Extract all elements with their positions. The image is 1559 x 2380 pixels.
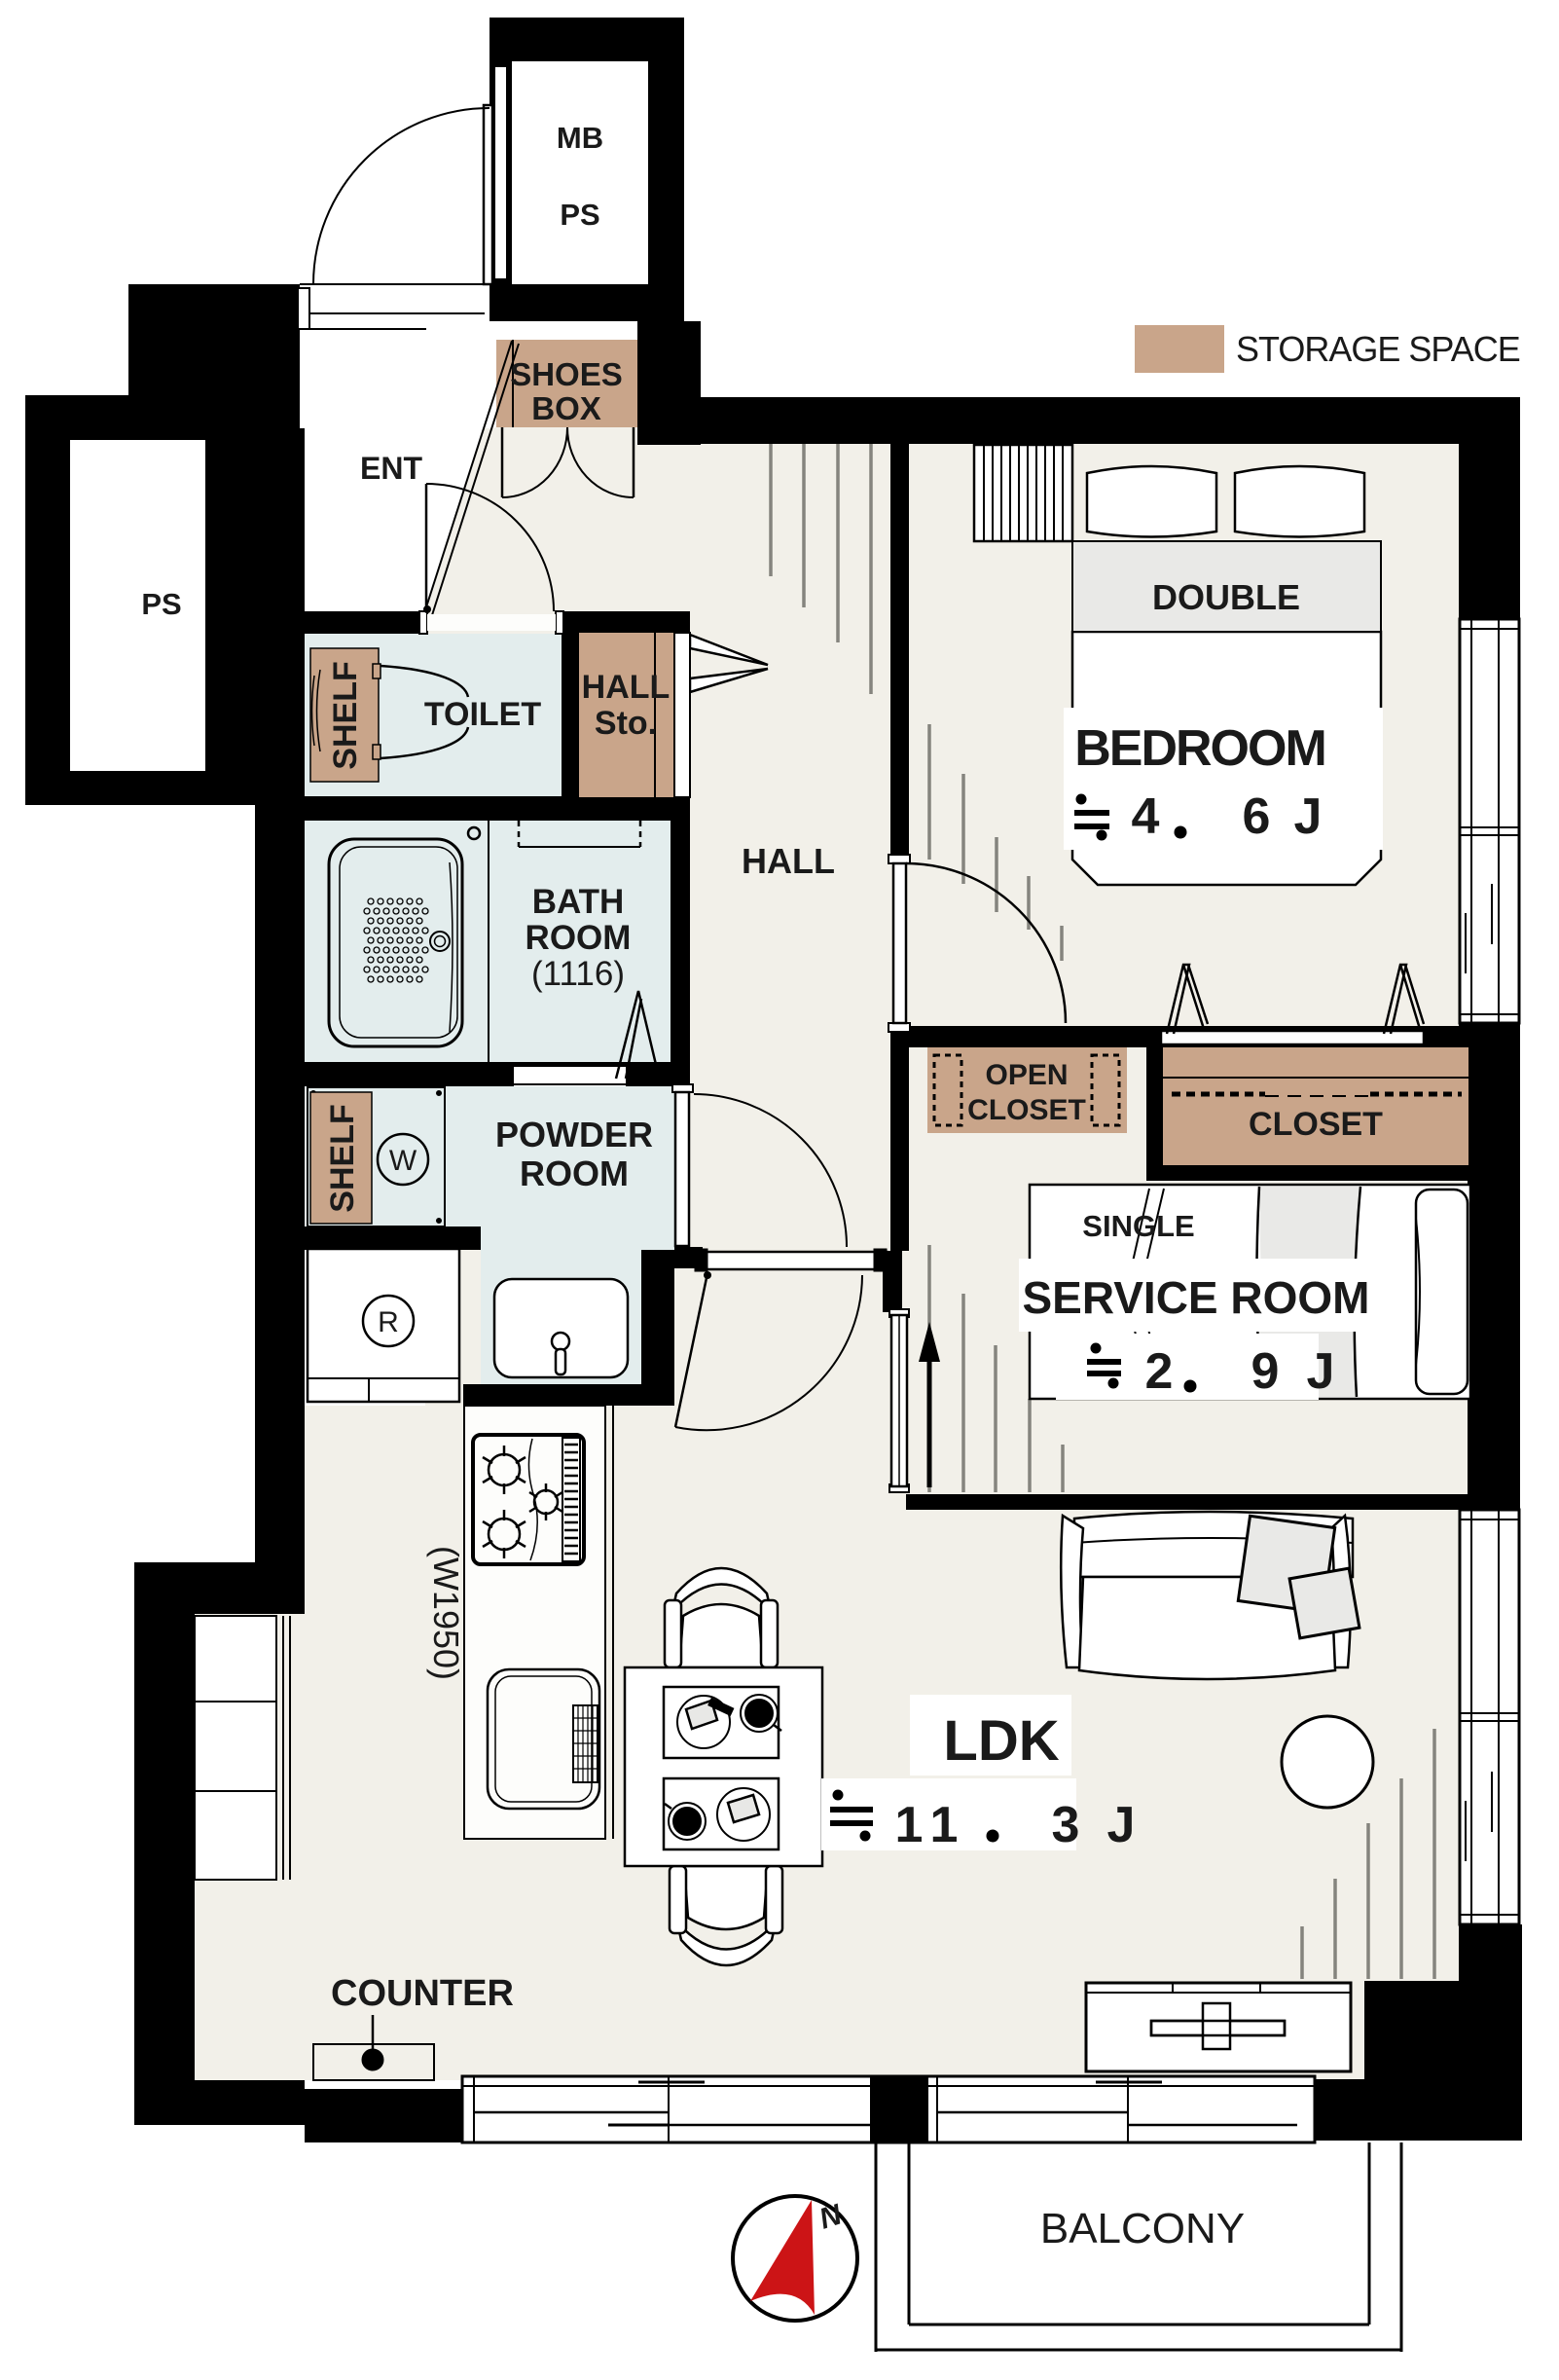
- svg-text:SHOES: SHOES: [510, 356, 623, 392]
- svg-text:W: W: [389, 1145, 417, 1177]
- svg-text:CLOSET: CLOSET: [1249, 1106, 1383, 1143]
- svg-text:ROOM: ROOM: [520, 1153, 629, 1193]
- svg-text:POWDER: POWDER: [495, 1115, 653, 1154]
- svg-text:BALCONY: BALCONY: [1040, 2205, 1245, 2252]
- svg-text:ROOM: ROOM: [526, 919, 632, 957]
- svg-text:SHELF: SHELF: [324, 1104, 361, 1212]
- svg-text:9: 9: [1251, 1343, 1280, 1400]
- svg-text:3: 3: [1052, 1797, 1080, 1853]
- svg-text:SHELF: SHELF: [327, 661, 364, 769]
- svg-text:(1116): (1116): [531, 955, 625, 993]
- svg-text:SINGLE: SINGLE: [1082, 1209, 1194, 1243]
- svg-text:COUNTER: COUNTER: [331, 1973, 514, 2014]
- svg-text:J: J: [1107, 1797, 1136, 1853]
- svg-text:4: 4: [1132, 788, 1160, 845]
- svg-text:DOUBLE: DOUBLE: [1152, 577, 1300, 617]
- svg-text:R: R: [378, 1306, 399, 1338]
- svg-text:HALL: HALL: [582, 669, 671, 706]
- svg-text:OPEN: OPEN: [985, 1059, 1068, 1091]
- svg-text:TOILET: TOILET: [424, 696, 541, 733]
- svg-text:6: 6: [1243, 788, 1271, 845]
- svg-text:STORAGE SPACE: STORAGE SPACE: [1236, 329, 1520, 369]
- svg-text:PS: PS: [560, 198, 599, 232]
- svg-text:LDK: LDK: [943, 1709, 1059, 1773]
- svg-text:HALL: HALL: [742, 841, 835, 881]
- svg-text:Sto.: Sto.: [595, 705, 657, 742]
- svg-text:J: J: [1307, 1343, 1335, 1400]
- svg-text:SERVICE ROOM: SERVICE ROOM: [1023, 1272, 1370, 1323]
- svg-text:1: 1: [895, 1797, 924, 1853]
- svg-text:J: J: [1294, 788, 1323, 845]
- svg-text:2: 2: [1145, 1343, 1174, 1400]
- svg-text:(W1950): (W1950): [426, 1546, 466, 1680]
- svg-text:PS: PS: [141, 587, 181, 621]
- svg-text:CLOSET: CLOSET: [967, 1094, 1086, 1126]
- svg-text:ENT: ENT: [360, 451, 422, 486]
- svg-text:MB: MB: [557, 121, 603, 155]
- svg-text:1: 1: [930, 1797, 959, 1853]
- svg-text:BATH: BATH: [532, 883, 625, 921]
- svg-text:BOX: BOX: [531, 390, 601, 426]
- svg-text:BEDROOM: BEDROOM: [1074, 720, 1325, 777]
